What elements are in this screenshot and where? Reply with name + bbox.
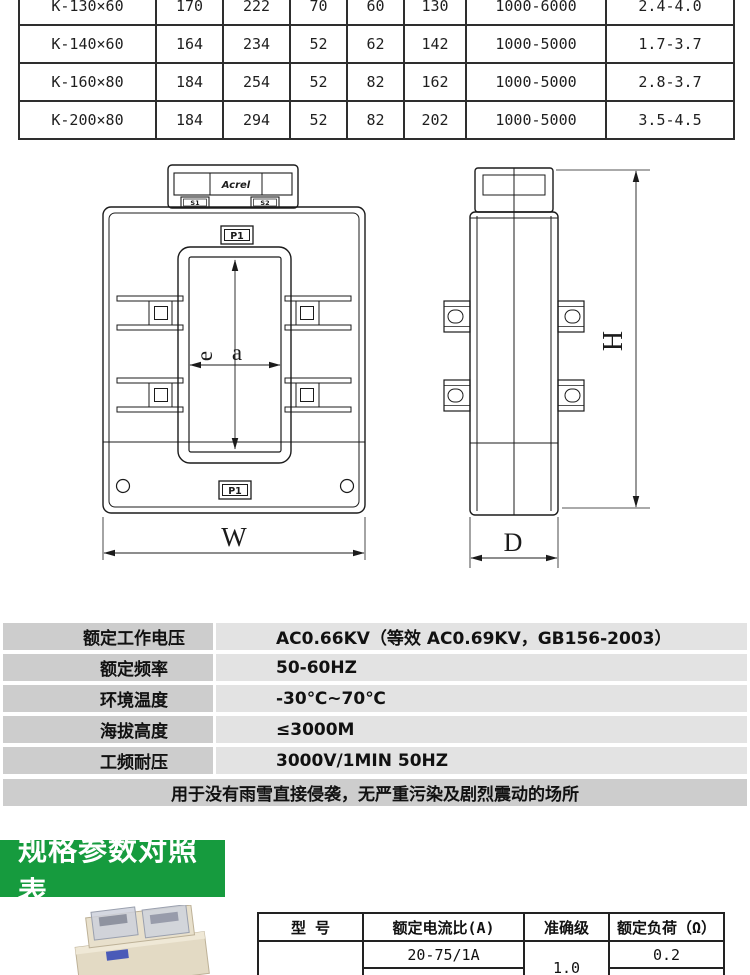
cell: 170: [156, 0, 223, 25]
model-cell: [258, 941, 363, 975]
model-cell: K-160×80: [19, 63, 156, 101]
cell: 52: [290, 101, 347, 139]
spec-label: 额定频率: [3, 654, 213, 681]
burden-cell: 1.0: [609, 968, 724, 975]
spec-value: 3000V/1MIN 50HZ: [216, 747, 747, 774]
model-cell: K-200×80: [19, 101, 156, 139]
cell: 2.8-3.7: [606, 63, 734, 101]
front-view: Acrel S1 S2 P1: [103, 165, 365, 560]
spec-row: 额定工作电压 AC0.66KV（等效 AC0.69KV，GB156-2003）: [3, 623, 747, 650]
burden-cell: 0.2: [609, 941, 724, 968]
header-accuracy: 准确级: [524, 913, 609, 941]
cell: 1000-5000: [466, 101, 606, 139]
ratio-cell: 100-450/5(1)A: [363, 968, 524, 975]
dim-a-label: a: [232, 340, 242, 365]
cell: 1000-5000: [466, 63, 606, 101]
table-row: K-130×60 170 222 70 60 130 1000-6000 2.4…: [19, 0, 734, 25]
p1-top-label: P1: [230, 231, 244, 242]
spec-comparison-table: 型 号 额定电流比(A) 准确级 额定负荷（Ω） 20-75/1A 1.0 0.…: [257, 912, 725, 975]
terminal-s2-label: S2: [260, 199, 269, 207]
dim-d-label: D: [504, 528, 523, 557]
section-banner-title: 规格参数对照表: [18, 827, 225, 911]
brand-logo: Acrel: [221, 180, 251, 191]
product-photo: [50, 905, 240, 975]
table-row: K-140×60 164 234 52 62 142 1000-5000 1.7…: [19, 25, 734, 63]
cell: 62: [347, 25, 404, 63]
cell: 1.7-3.7: [606, 25, 734, 63]
cell: 294: [223, 101, 290, 139]
cell: 82: [347, 63, 404, 101]
cell: 142: [404, 25, 466, 63]
spec-label: 工频耐压: [3, 747, 213, 774]
cell: 184: [156, 63, 223, 101]
ratio-cell: 20-75/1A: [363, 941, 524, 968]
cell: 3.5-4.5: [606, 101, 734, 139]
spec-value: -30℃~70℃: [216, 685, 747, 712]
dimension-table: K-130×60 170 222 70 60 130 1000-6000 2.4…: [18, 0, 735, 140]
spec-usage-note: 用于没有雨雪直接侵袭，无严重污染及剧烈震动的场所: [3, 779, 747, 806]
spec-row: 环境温度 -30℃~70℃: [3, 685, 747, 712]
model-cell: K-130×60: [19, 0, 156, 25]
terminal-s1-label: S1: [190, 199, 200, 207]
table-row: 20-75/1A 1.0 0.2: [258, 941, 724, 968]
header-ratio: 额定电流比(A): [363, 913, 524, 941]
cell: 130: [404, 0, 466, 25]
spec-label: 额定工作电压: [3, 623, 213, 650]
mounting-hole: [341, 480, 354, 493]
product-spec-page: K-130×60 170 222 70 60 130 1000-6000 2.4…: [0, 0, 750, 975]
table-header-row: 型 号 额定电流比(A) 准确级 额定负荷（Ω）: [258, 913, 724, 941]
spec-label: 海拔高度: [3, 716, 213, 743]
table-row: K-160×80 184 254 52 82 162 1000-5000 2.8…: [19, 63, 734, 101]
header-model: 型 号: [258, 913, 363, 941]
cell: 60: [347, 0, 404, 25]
side-view: H D: [444, 168, 650, 568]
cell: 184: [156, 101, 223, 139]
cell: 52: [290, 25, 347, 63]
spec-value: ≤3000M: [216, 716, 747, 743]
spec-value: 50-60HZ: [216, 654, 747, 681]
spec-label: 环境温度: [3, 685, 213, 712]
spec-value: AC0.66KV（等效 AC0.69KV，GB156-2003）: [216, 623, 747, 650]
cell: 52: [290, 63, 347, 101]
model-cell: K-140×60: [19, 25, 156, 63]
cell: 164: [156, 25, 223, 63]
cell: 82: [347, 101, 404, 139]
mounting-hole: [117, 480, 130, 493]
cell: 70: [290, 0, 347, 25]
cell: 2.4-4.0: [606, 0, 734, 25]
cell: 254: [223, 63, 290, 101]
spec-row: 工频耐压 3000V/1MIN 50HZ: [3, 747, 747, 774]
spec-row: 海拔高度 ≤3000M: [3, 716, 747, 743]
cell: 1000-5000: [466, 25, 606, 63]
cell: 202: [404, 101, 466, 139]
dim-w-label: W: [221, 522, 247, 552]
header-burden: 额定负荷（Ω）: [609, 913, 724, 941]
cell: 234: [223, 25, 290, 63]
table-row: K-200×80 184 294 52 82 202 1000-5000 3.5…: [19, 101, 734, 139]
cell: 222: [223, 0, 290, 25]
technical-drawing: Acrel S1 S2 P1: [0, 160, 750, 608]
accuracy-cell: 1.0: [524, 941, 609, 975]
spec-table: 额定工作电压 AC0.66KV（等效 AC0.69KV，GB156-2003） …: [3, 623, 747, 806]
cell: 162: [404, 63, 466, 101]
cell: 1000-6000: [466, 0, 606, 25]
spec-row: 额定频率 50-60HZ: [3, 654, 747, 681]
p1-bottom-label: P1: [228, 486, 242, 497]
section-banner: 规格参数对照表: [0, 840, 225, 897]
dim-h-label: H: [598, 331, 629, 351]
dim-e-label: e: [192, 351, 217, 361]
